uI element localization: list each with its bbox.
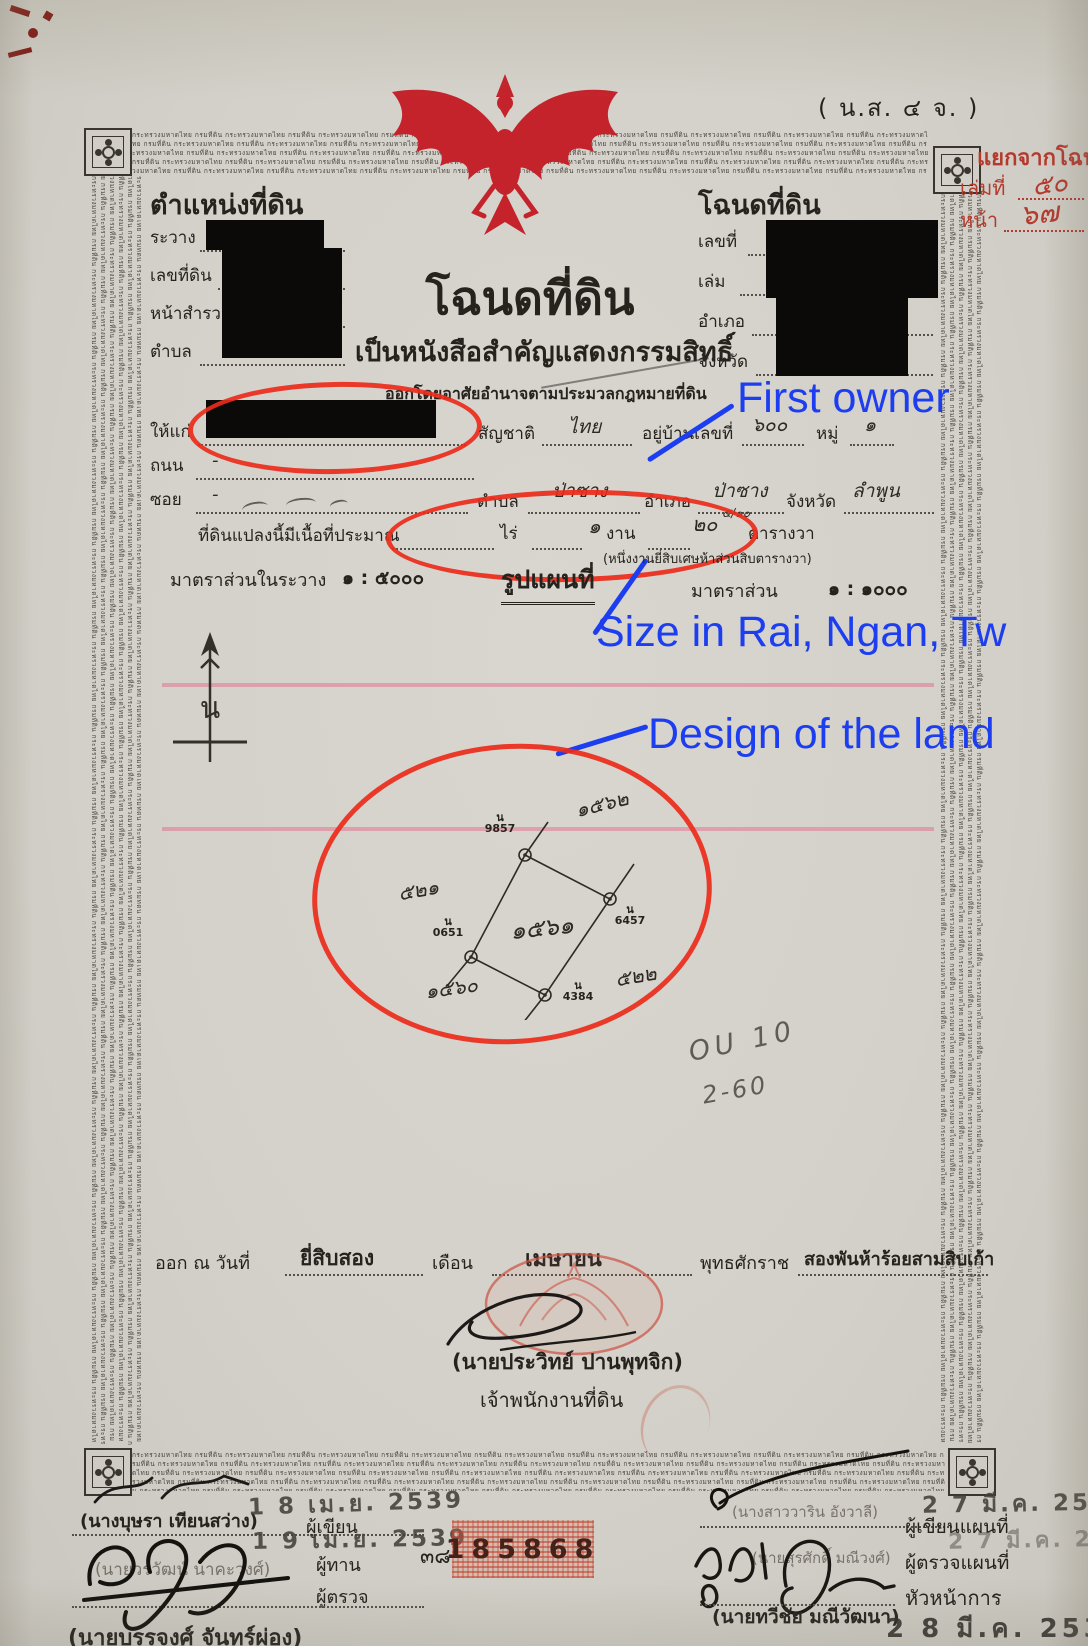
survey-scale-label: มาตราส่วนในระวาง <box>170 565 326 594</box>
field-tambon-label: ตำบล <box>150 338 192 365</box>
date-stamp-28-mar: 2 8 มี.ค. 2539 <box>886 1608 1088 1646</box>
map-section-title: รูปแผนที่ <box>501 560 595 605</box>
north-arrow: น <box>165 630 255 775</box>
red-ink-mark <box>8 47 32 58</box>
annotation-first-owner: First owner <box>737 374 950 423</box>
garuda-emblem <box>380 70 630 240</box>
red-ink-mark <box>43 11 54 22</box>
province-label: จังหวัด <box>786 488 836 515</box>
margin-note-page-label: หน้า <box>960 204 998 236</box>
red-ink-mark <box>10 5 31 17</box>
serial-number: 185868 <box>446 1534 601 1565</box>
field-volume-label: เล่ม <box>698 268 725 295</box>
moo-label: หมู่ <box>816 420 838 447</box>
nationality-label: สัญชาติ <box>478 420 535 447</box>
issue-year: สองพันห้าร้อยสามสิบเก้า <box>804 1244 994 1273</box>
marker-number: 6457 <box>615 914 646 927</box>
road-label: ถนน <box>150 452 184 479</box>
parcel-number: ๑๕๖๑ <box>508 905 576 950</box>
issuer-title: เจ้าพนักงานที่ดิน <box>480 1384 623 1416</box>
issue-era-label: พุทธศักราช <box>700 1248 789 1277</box>
redaction-box-position <box>222 248 342 358</box>
annotation-design: Design of the land <box>648 710 995 759</box>
survey-scale-value: ๑ : ๕๐๐๐ <box>342 563 424 593</box>
marker-number: 0651 <box>433 926 464 939</box>
map-checker-role: ผู้ตรวจแผนที่ <box>905 1548 1009 1578</box>
grant-to-label: ให้แก่ <box>150 418 191 445</box>
field-rawang-label: ระวาง <box>150 224 196 251</box>
issue-day: ยี่สิบสอง <box>300 1242 374 1275</box>
field-tambon-line <box>200 362 345 366</box>
area-label: ที่ดินแปลงนี้มีเนื้อที่ประมาณ <box>198 522 400 549</box>
area-spelled-out: (หนึ่งงานยี่สิบเศษห้าส่วนสิบตารางวา) <box>603 548 812 569</box>
head-clerk-name: (นายบรรจงศ์ จันทร์ผ่อง) <box>68 1620 302 1646</box>
section-head-name: (นายทวีชัย มณีวัฒนา) <box>712 1602 900 1632</box>
nationality-value: ไทย <box>568 412 601 442</box>
redaction-box-deed <box>766 220 938 298</box>
pink-rule-line <box>162 683 934 687</box>
map-writer-name: (นางสาววาริน อังวาลี) <box>732 1500 878 1524</box>
survey-marker-right: น 6457 <box>600 904 660 926</box>
survey-marker-top: น 9857 <box>470 812 530 834</box>
red-ink-mark <box>28 28 38 38</box>
field-survey-page-label: หน้าสำรวจ <box>150 300 231 327</box>
survey-marker-left: น 0651 <box>418 916 478 938</box>
field-parcel-no-label: เลขที่ดิน <box>150 262 212 289</box>
field-amphoe-label: อำเภอ <box>698 308 745 335</box>
deed-main-title: โฉนดที่ดิน <box>420 262 640 335</box>
pencil-note-line2: 2-60 <box>700 1070 770 1109</box>
soi-label: ซอย <box>150 486 182 513</box>
land-deed-document: กระทรวงมหาดไทย กรมที่ดิน กระทรวงมหาดไทย … <box>0 0 1088 1646</box>
annotation-size: Size in Rai, Ngan, Tw <box>596 608 1006 657</box>
map-scale-label: มาตราส่วน <box>691 576 778 605</box>
province-value: ลำพูน <box>852 476 900 506</box>
pencil-note-line1: OU 10 <box>686 1015 799 1068</box>
field-deed-no-label: เลขที่ <box>698 228 737 255</box>
form-code: ( น.ส. ๔ จ. ) <box>818 88 979 127</box>
survey-marker-bottom: น 4384 <box>548 980 608 1002</box>
soi-value: - <box>212 484 219 505</box>
amphoe-value: ป่าซาง <box>712 476 768 506</box>
border-microtext-left: กระทรวงมหาดไทย กรมที่ดิน กระทรวงมหาดไทย … <box>89 176 141 1446</box>
margin-note-book-label: เล่มที่ <box>960 172 1005 204</box>
issue-prefix: ออก ณ วันที่ <box>155 1248 250 1277</box>
redaction-box-position <box>206 220 324 250</box>
annotation-circle-owner <box>187 379 483 476</box>
serial-number-plate: 185868 <box>452 1520 594 1578</box>
proofreader-role: ผู้ทาน <box>316 1550 361 1579</box>
svg-text:น: น <box>200 691 221 726</box>
marker-number: 9857 <box>485 822 516 835</box>
issuer-name: (นายประวิทย์ ปานพุทจิก) <box>452 1346 683 1379</box>
frame-rosette-top-left <box>84 128 132 176</box>
map-scale-value: ๑ : ๑๐๐๐ <box>828 574 908 604</box>
marker-number: 4384 <box>563 990 594 1003</box>
signature-stroke <box>90 1470 260 1510</box>
road-value: - <box>212 450 219 471</box>
margin-note-page-value: ๖๗ <box>1018 190 1061 238</box>
writer-name: (นางบุษรา เทียนสว่าง) <box>80 1506 258 1535</box>
redaction-box-deed <box>776 298 908 376</box>
